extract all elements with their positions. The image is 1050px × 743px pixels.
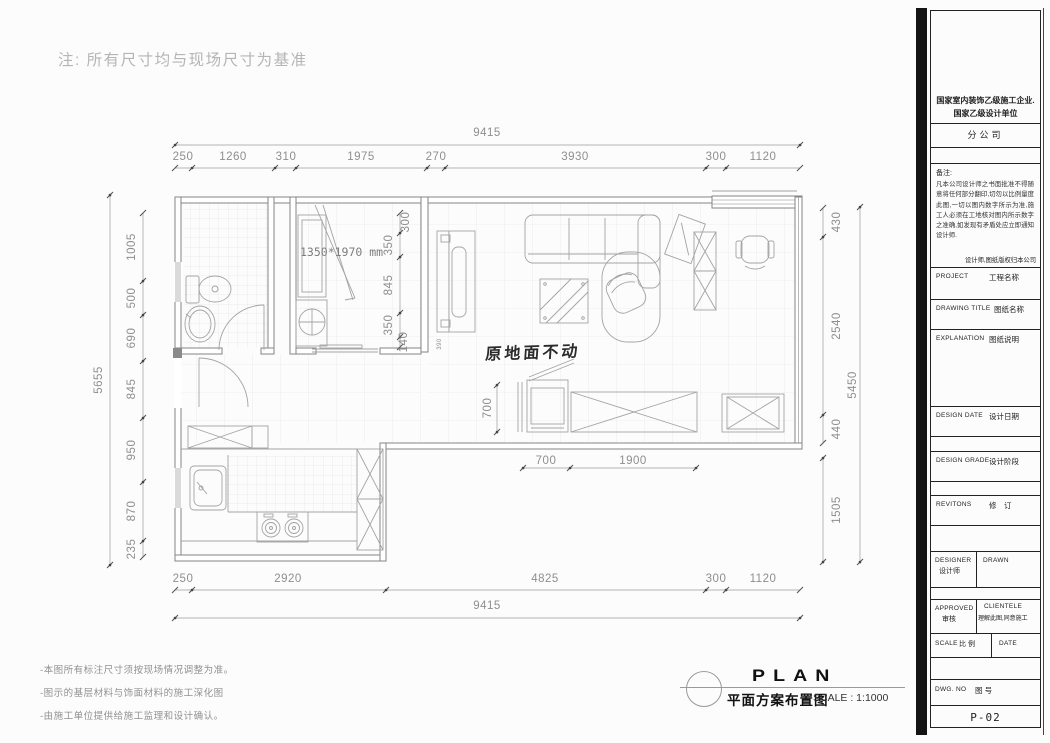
dim-label: 1120 (750, 573, 777, 585)
revisions-label-zh: 修 订 (989, 500, 1012, 511)
dim-label: 1975 (347, 151, 375, 163)
dim-label: 500 (126, 288, 138, 309)
dim-label: 9415 (473, 600, 501, 612)
dim-label: 250 (173, 151, 194, 163)
dim-label: 4825 (531, 573, 559, 585)
dim-label: 140 (398, 332, 410, 353)
dim-label: 845 (126, 379, 138, 400)
floor-note-label: 原地面不动 (485, 337, 582, 364)
dim-label: 1120 (750, 151, 777, 163)
company-qualification: 国家乙级设计单位 (931, 108, 1040, 119)
sheet-border-bar (916, 8, 927, 735)
clientele-label-zh: 理解此图,同意施工 (978, 613, 1028, 622)
shower-size-label: 1350*1970 mm (300, 245, 383, 259)
design-grade-label-en: DESIGN GRADE (936, 457, 989, 464)
dim-label: 430 (831, 212, 843, 233)
title-block: 国家室内装饰乙级施工企业. 国家乙级设计单位 分公司 备注: 凡本公司设计师之书… (930, 10, 1041, 728)
sheet-border-edge (1043, 8, 1044, 735)
dim-label: 300 (400, 212, 412, 233)
dim-label: 300 (706, 151, 727, 163)
remark-label: 备注: (936, 168, 952, 178)
dim-label: 870 (126, 501, 138, 522)
floor-plan-drawing (0, 0, 1050, 743)
dim-label: 350 (383, 235, 395, 256)
dim-label: 250 (173, 573, 194, 585)
dim-label: 1005 (126, 233, 138, 261)
dim-label: 310 (276, 151, 297, 163)
design-date-label-en: DESIGN DATE (936, 412, 983, 419)
footer-note: -由施工单位提供给施工监理和设计确认。 (40, 708, 224, 722)
dim-label: 390 (437, 338, 443, 350)
designer-label-zh: 设计师 (939, 566, 960, 576)
dim-label: 9415 (473, 127, 501, 139)
design-date-label-zh: 设计日期 (989, 411, 1019, 422)
design-grade-label-zh: 设计阶段 (989, 456, 1019, 467)
drawing-sheet: 注: 所有尺寸均与现场尺寸为基准 (0, 0, 1050, 743)
copyright-note: 设计师,图纸版权归本公司 (965, 255, 1036, 264)
stove (181, 512, 357, 542)
drawn-label: DRAWN (983, 557, 1009, 564)
date-label: DATE (999, 640, 1017, 647)
dim-label: 1900 (619, 455, 647, 467)
dim-label: 690 (126, 328, 138, 349)
dim-label: 845 (383, 275, 395, 296)
dim-label: 270 (426, 151, 447, 163)
caption-title-en: PLAN (752, 666, 837, 686)
dim-label: 1260 (219, 151, 247, 163)
dim-label: 2540 (831, 312, 843, 340)
dim-label: 5450 (847, 371, 859, 399)
explanation-label-en: EXPLANATION (936, 335, 984, 342)
designer-label-en: DESIGNER (935, 557, 971, 564)
drawing-title-label-en: DRAWING TITLE (936, 305, 990, 312)
approved-label-en: APPROVED (935, 605, 974, 612)
dim-label: 2920 (274, 573, 302, 585)
dim-label: 5655 (93, 366, 105, 394)
footer-note: -图示的基层材料与饰面材料的施工深化图 (40, 685, 224, 699)
dim-label: 300 (706, 573, 727, 585)
dim-label: 350 (383, 315, 395, 336)
dim-label: 700 (482, 398, 494, 419)
drawing-number: P-02 (931, 711, 1040, 724)
project-label-zh: 工程名称 (989, 272, 1019, 283)
explanation-label-zh: 图纸说明 (989, 334, 1019, 345)
project-label-en: PROJECT (936, 273, 968, 280)
dim-label: 700 (536, 455, 557, 467)
scale-label-zh: 比 例 (959, 639, 975, 649)
remark-body: 凡本公司设计师之书面批准不得随意将任何部分翻印,切勿以比例量度此图,一切以图内数… (936, 180, 1034, 242)
drawing-title-label-zh: 图纸名称 (994, 304, 1024, 315)
dim-label: 950 (126, 440, 138, 461)
dwg-no-label-zh: 图 号 (975, 685, 992, 696)
footer-note: -本图所有标注尺寸须按现场情况调整为准。 (40, 662, 234, 676)
dim-label: 235 (126, 539, 138, 560)
caption-scale: SCALE : 1:1000 (813, 692, 888, 704)
clientele-label-en: CLIENTELE (984, 603, 1022, 610)
fridge-cabinet (357, 449, 383, 550)
dim-label: 1505 (831, 496, 843, 524)
dim-label: 3930 (561, 151, 589, 163)
branch-label: 分公司 (931, 128, 1040, 141)
dwg-no-label-en: DWG. NO (935, 686, 966, 693)
caption-divider (680, 687, 905, 688)
company-name: 国家室内装饰乙级施工企业. (931, 95, 1040, 106)
caption-circle-symbol (686, 671, 722, 707)
revisions-label-en: REVITONS (936, 501, 972, 508)
dim-label: 440 (831, 419, 843, 440)
approved-label-zh: 审核 (942, 614, 956, 624)
scale-label-en: SCALE (935, 640, 958, 647)
